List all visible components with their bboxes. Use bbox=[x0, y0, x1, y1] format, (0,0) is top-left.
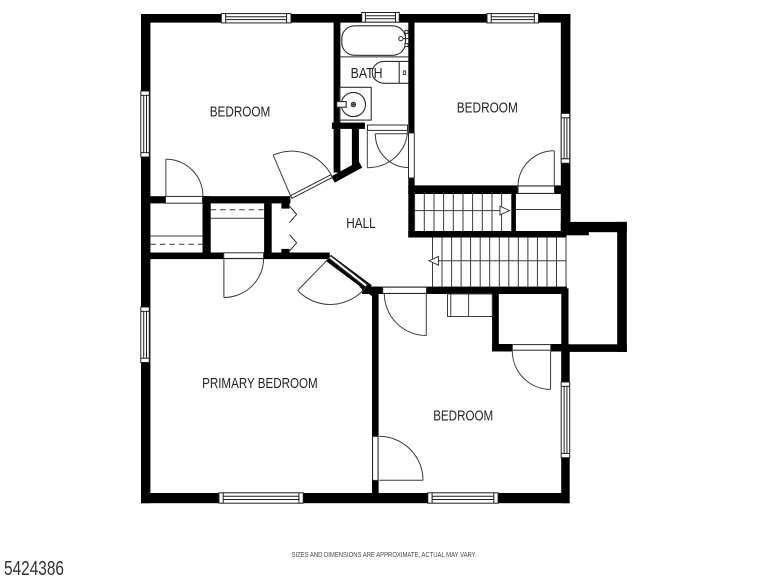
svg-text:SIZES AND DIMENSIONS ARE APPRO: SIZES AND DIMENSIONS ARE APPROXIMATE, AC… bbox=[292, 552, 477, 559]
svg-text:BATH: BATH bbox=[351, 65, 383, 82]
svg-text:PRIMARY BEDROOM: PRIMARY BEDROOM bbox=[202, 375, 318, 392]
svg-text:BEDROOM: BEDROOM bbox=[433, 408, 493, 425]
svg-text:BEDROOM: BEDROOM bbox=[457, 99, 518, 116]
svg-text:HALL: HALL bbox=[346, 215, 376, 232]
svg-text:BEDROOM: BEDROOM bbox=[210, 103, 271, 120]
svg-text:5424386: 5424386 bbox=[4, 558, 64, 576]
